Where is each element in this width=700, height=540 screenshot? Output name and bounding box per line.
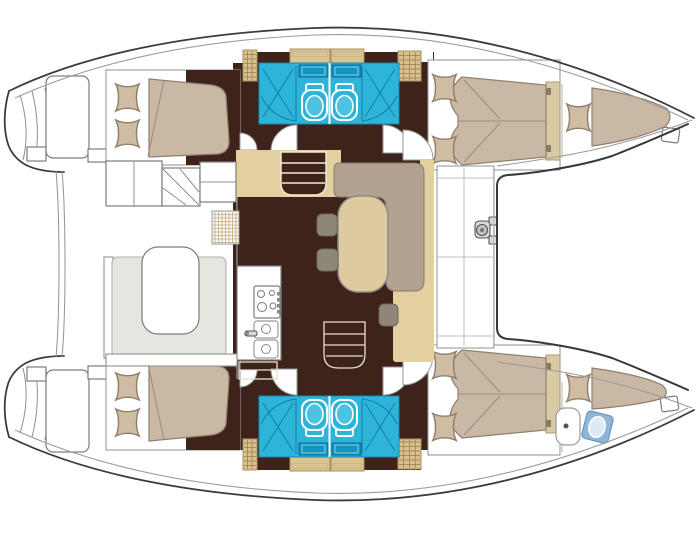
- crew-toilet: [581, 410, 614, 444]
- stool: [317, 214, 337, 236]
- bow-cleat: [660, 396, 679, 412]
- catamaran-plan-svg: [0, 0, 700, 540]
- galley-sink: [254, 340, 278, 358]
- pillow: [567, 375, 590, 402]
- pillow: [567, 104, 590, 131]
- port-bow-berth: [562, 84, 680, 158]
- dinette-floor: [393, 283, 434, 362]
- boat-floor-plan: [0, 0, 700, 540]
- galley-sink: [254, 321, 278, 338]
- stove: [254, 286, 280, 318]
- cockpit-bench: [106, 354, 237, 366]
- saloon-table: [338, 196, 388, 292]
- stool: [317, 249, 338, 271]
- galley: [237, 266, 281, 379]
- bow-berth: [592, 368, 666, 409]
- stool: [379, 304, 398, 326]
- cockpit-table: [142, 247, 199, 334]
- aft-cockpit: [104, 161, 239, 366]
- starboard-bow-berth: [556, 368, 679, 452]
- foredeck-bench: [437, 166, 494, 348]
